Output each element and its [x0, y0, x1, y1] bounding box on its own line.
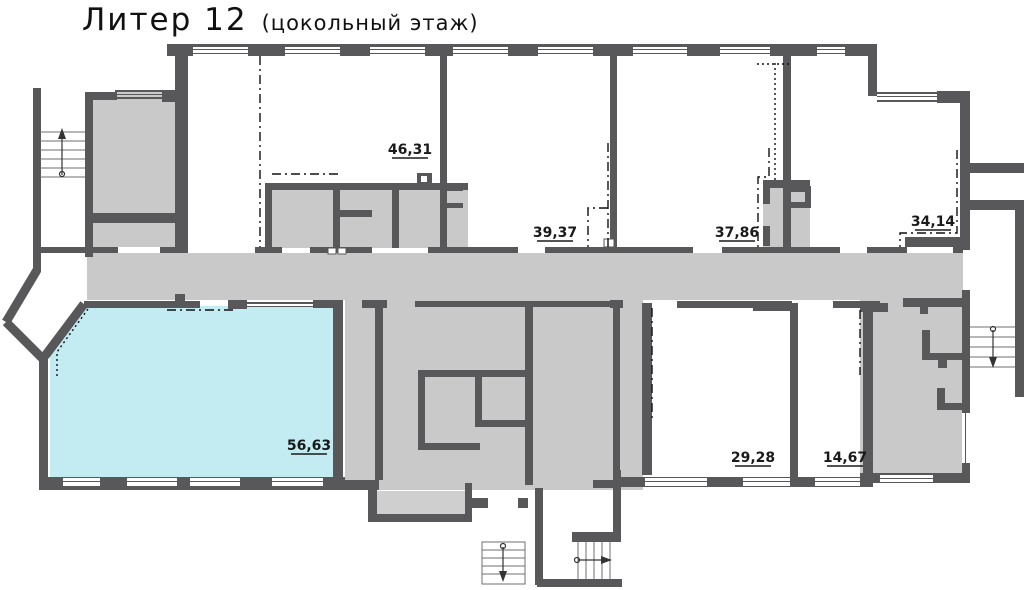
stair-bottom-left [482, 542, 525, 584]
room-56-63-label: 56,63 [287, 438, 331, 454]
stair-bottom-right [575, 542, 613, 579]
room-37-86-label: 37,86 [715, 225, 759, 241]
floor-plan-page: { "title": { "main": "Литер 12", "sub": … [0, 0, 1024, 590]
plan-title: Литер 12(цокольный этаж) [82, 2, 479, 38]
room-29-28-label: 29,28 [731, 450, 775, 466]
stair-left [40, 128, 85, 177]
building-title: Литер 12 [82, 2, 248, 38]
stair-down-arrow-icon [989, 357, 997, 368]
stair-right [970, 327, 1015, 369]
floor-plan-drawing: 46,31 39,37 37,86 34,14 56,63 29,28 14,6… [0, 0, 1024, 590]
room-14-67-label: 14,67 [823, 450, 867, 466]
room-39-37-label: 39,37 [533, 225, 577, 241]
room-46-31-label: 46,31 [388, 142, 432, 158]
entrance-porch [377, 491, 465, 514]
stair-up-arrow-icon [58, 128, 66, 139]
floor-subtitle: (цокольный этаж) [262, 11, 479, 35]
room-34-14-label: 34,14 [911, 214, 956, 230]
